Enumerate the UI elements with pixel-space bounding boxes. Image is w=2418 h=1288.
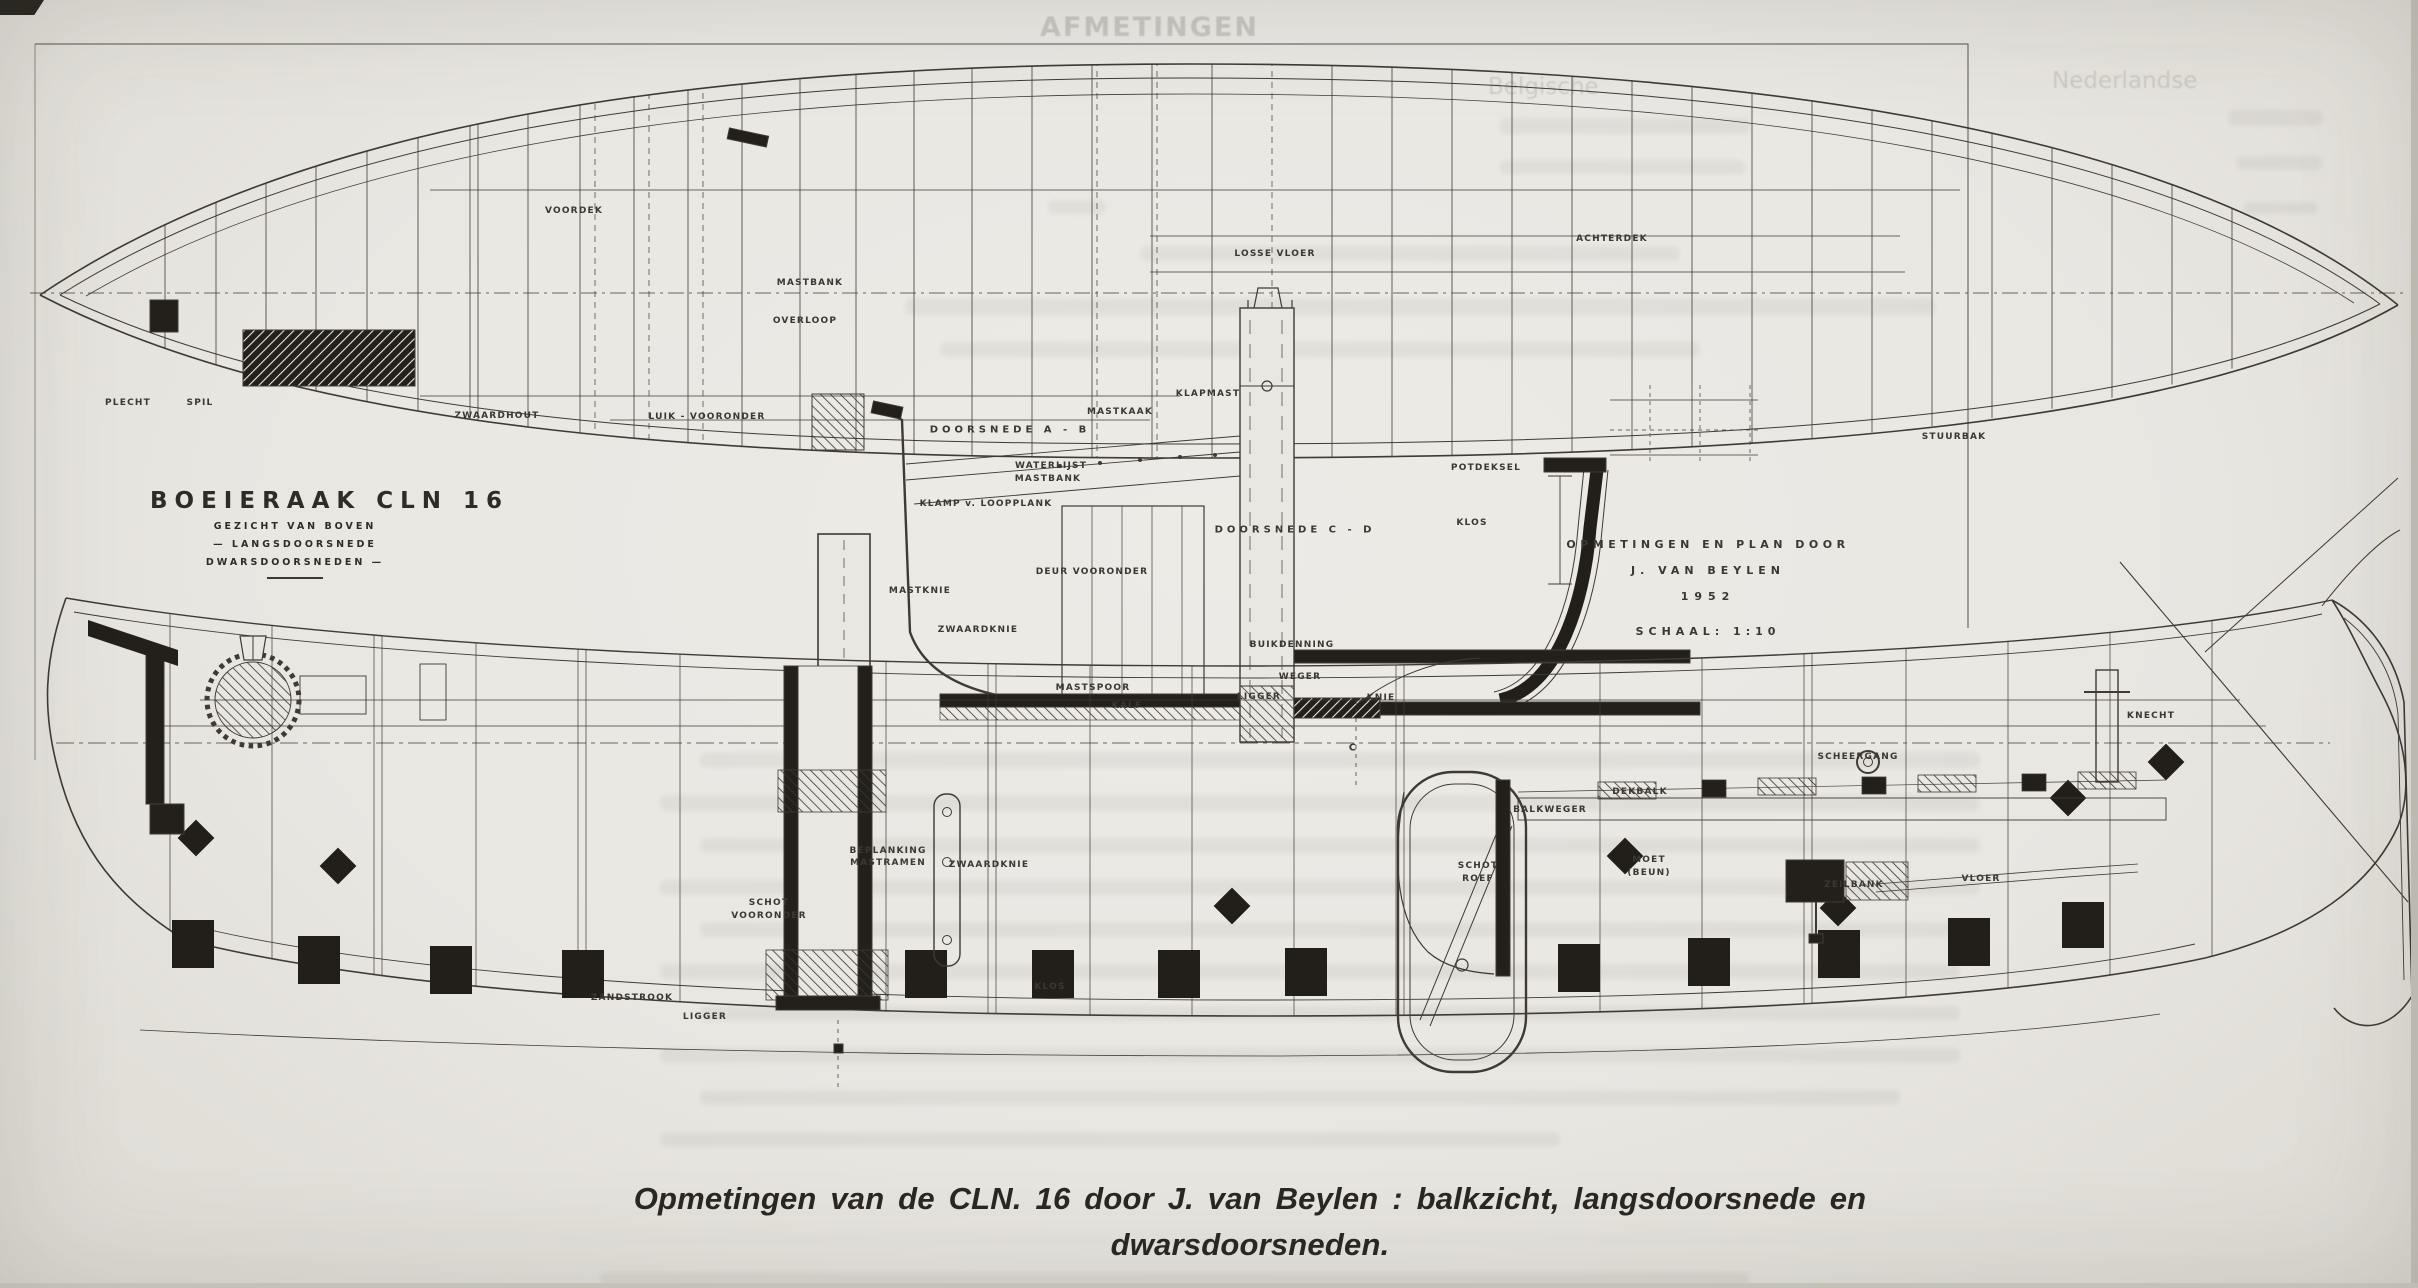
section-label: LIGGER bbox=[1237, 692, 1281, 702]
profile-label: SCHEERGANG bbox=[1817, 752, 1898, 762]
plan-label: LOSSE VLOER bbox=[1234, 249, 1315, 259]
plan-label: LUIK - VOORONDER bbox=[648, 412, 765, 422]
profile-label: MASTRAMEN bbox=[850, 858, 926, 868]
scan-edge-bottom bbox=[0, 1283, 2418, 1288]
profile-label: VOORONDER bbox=[731, 911, 807, 921]
section-label: ZWAARDKNIE bbox=[938, 625, 1018, 635]
section-label: WATERLIJST bbox=[1015, 461, 1087, 471]
profile-label: BEPLANKING bbox=[849, 846, 926, 856]
section-label: KLAPMAST bbox=[1176, 389, 1240, 399]
caption-line-2: dwarsdoorsneden. bbox=[545, 1222, 1955, 1268]
drawing-labels: PLECHTSPILVOORDEKMASTBANKOVERLOOPZWAARDH… bbox=[0, 0, 2418, 1288]
section-label: BUIKDENNING bbox=[1250, 640, 1335, 650]
profile-label: ZANDSTROOK bbox=[591, 993, 673, 1003]
plan-label: ZWAARDHOUT bbox=[454, 411, 539, 421]
drawing-title: BOEIERAAK CLN 16 bbox=[150, 488, 440, 514]
section-label: DEUR VOORONDER bbox=[1036, 567, 1149, 577]
profile-label: MOET bbox=[1632, 855, 1666, 865]
section-label: DOORSNEDE C - D bbox=[1215, 525, 1376, 536]
plan-label: MASTBANK bbox=[777, 278, 843, 288]
profile-label: LIGGER bbox=[683, 1012, 727, 1022]
profile-label: SCHOT bbox=[749, 898, 789, 908]
section-label: WEGER bbox=[1279, 672, 1322, 682]
plan-label: VOORDEK bbox=[545, 206, 603, 216]
section-label: MASTKAAK bbox=[1087, 407, 1153, 417]
title-block: BOEIERAAK CLN 16 GEZICHT VAN BOVEN — LAN… bbox=[150, 488, 440, 579]
scan-edge-right bbox=[2411, 0, 2418, 1288]
credit-line: OPMETINGEN EN PLAN DOOR bbox=[1555, 538, 1861, 551]
credit-scale: SCHAAL: 1:10 bbox=[1555, 625, 1861, 638]
credit-block: OPMETINGEN EN PLAN DOOR J. VAN BEYLEN 19… bbox=[1555, 538, 1861, 638]
title-subline-2: — LANGSDOORSNEDE bbox=[150, 539, 440, 550]
profile-label: ROEF bbox=[1462, 874, 1494, 884]
credit-author: J. VAN BEYLEN bbox=[1555, 564, 1861, 577]
scanned-page: AFMETINGEN Belgische Nederlandse bbox=[0, 0, 2418, 1288]
section-label: MASTBANK bbox=[1015, 474, 1081, 484]
plan-label: ACHTERDEK bbox=[1576, 234, 1648, 244]
profile-label: DEKBALK bbox=[1612, 787, 1668, 797]
figure-caption: Opmetingen van de CLN. 16 door J. van Be… bbox=[545, 1176, 1955, 1268]
section-label: MASTSPOOR bbox=[1056, 683, 1131, 693]
section-label: KNIE bbox=[1367, 693, 1396, 703]
profile-label: ZWAARDKNIE bbox=[949, 860, 1029, 870]
title-subline-3: DWARSDOORSNEDEN — bbox=[150, 557, 440, 568]
profile-label: VLOER bbox=[1961, 874, 2000, 884]
section-label: KLOS bbox=[1456, 518, 1487, 528]
plan-label: OVERLOOP bbox=[773, 316, 837, 326]
section-label: KLAMP v. LOOPPLANK bbox=[920, 499, 1053, 509]
profile-label: KLOS bbox=[1034, 982, 1065, 992]
profile-label: ZEILBANK bbox=[1824, 880, 1884, 890]
section-label: C bbox=[1349, 743, 1358, 754]
credit-year: 1952 bbox=[1555, 590, 1861, 603]
section-label: DOORSNEDE A - B bbox=[930, 425, 1091, 436]
caption-line-1: Opmetingen van de CLN. 16 door J. van Be… bbox=[545, 1176, 1955, 1222]
section-label: KALF bbox=[1112, 701, 1143, 711]
plan-label: PLECHT bbox=[105, 398, 151, 408]
plan-label: SPIL bbox=[187, 398, 214, 408]
title-subline-1: GEZICHT VAN BOVEN bbox=[150, 521, 440, 532]
section-label: MASTKNIE bbox=[889, 586, 951, 596]
profile-label: SCHOT bbox=[1458, 861, 1498, 871]
profile-label: BALKWEGER bbox=[1513, 805, 1587, 815]
profile-label: KNECHT bbox=[2127, 711, 2175, 721]
profile-label: (BEUN) bbox=[1627, 868, 1670, 878]
section-label: POTDEKSEL bbox=[1451, 463, 1521, 473]
title-rule bbox=[267, 577, 323, 579]
plan-label: STUURBAK bbox=[1922, 432, 1987, 442]
